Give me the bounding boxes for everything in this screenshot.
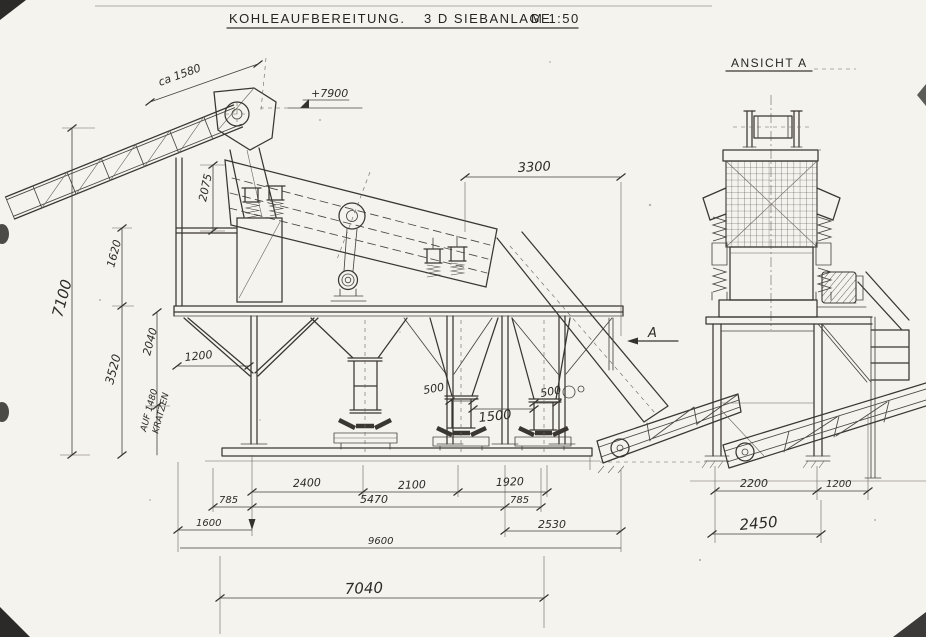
drawing-svg: KOHLEAUFBEREITUNG. 3 D SIEBANLAGE M 1:50… <box>0 0 926 637</box>
title-scale: M 1:50 <box>531 11 580 26</box>
dim-5470: 5470 <box>360 493 388 506</box>
front-tail-pulley <box>736 443 754 461</box>
scan-artifacts <box>0 0 926 637</box>
dim-ca-1580: ca 1580 <box>157 61 203 88</box>
section-marker: A <box>627 326 678 345</box>
dimensions: 7100 3520 2040 1620 2075 AUF 1480 KRATZE… <box>48 61 872 635</box>
hopper-1 <box>311 318 407 456</box>
head-pulley-housing <box>214 88 276 150</box>
front-view <box>690 95 926 481</box>
front-motor <box>817 272 866 307</box>
vibrator-drive <box>339 203 365 229</box>
feed-box-tower <box>176 158 282 306</box>
title-main: KOHLEAUFBEREITUNG. <box>229 11 406 26</box>
front-screen-box <box>703 150 840 317</box>
dim-2530: 2530 <box>538 518 566 531</box>
punch-hole-top <box>0 224 9 244</box>
front-head-pulley <box>733 111 813 147</box>
dim-785-right: 785 <box>510 495 529 506</box>
drawing-sheet: KOHLEAUFBEREITUNG. 3 D SIEBANLAGE M 1:50… <box>0 0 926 637</box>
front-conveyor <box>723 383 926 468</box>
dim-1200-front: 1200 <box>826 479 851 490</box>
punch-hole-bottom <box>0 402 9 422</box>
front-support <box>702 317 872 468</box>
drive-bearing <box>339 271 358 290</box>
title-block: KOHLEAUFBEREITUNG. 3 D SIEBANLAGE M 1:50 <box>95 6 712 28</box>
dim-3520: 3520 <box>102 352 124 385</box>
vibrating-screen <box>225 160 497 301</box>
motor <box>822 272 856 303</box>
dim-500-left: 500 <box>422 381 445 397</box>
dim-2075: 2075 <box>196 173 215 203</box>
screen-spring-mounts-right <box>424 236 467 277</box>
dim-2100: 2100 <box>398 478 426 492</box>
dim-1600: 1600 <box>196 518 221 529</box>
ansicht-a-label: ANSICHT A <box>731 56 808 70</box>
dim-785-left: 785 <box>219 495 238 506</box>
dim-2200: 2200 <box>740 477 768 490</box>
dim-9600: 9600 <box>368 536 393 547</box>
discharge-chute <box>497 232 668 422</box>
dim-3300: 3300 <box>517 159 551 176</box>
elevation-label: +7900 <box>311 87 348 100</box>
dim-7040: 7040 <box>345 579 384 598</box>
dim-1500: 1500 <box>478 408 512 426</box>
view-label: ANSICHT A <box>726 56 856 71</box>
screen-lower-box <box>730 247 813 300</box>
dim-1620: 1620 <box>104 238 124 268</box>
screen-spring-mounts-left <box>242 186 285 218</box>
feed-conveyor <box>6 58 277 219</box>
base-beam <box>222 448 592 456</box>
dim-2450: 2450 <box>739 513 779 534</box>
dim-1200: 1200 <box>184 348 213 364</box>
section-marker-label: A <box>647 326 657 341</box>
front-side-chute <box>858 272 909 478</box>
dim-1920: 1920 <box>496 475 524 489</box>
dim-2400: 2400 <box>293 476 321 490</box>
